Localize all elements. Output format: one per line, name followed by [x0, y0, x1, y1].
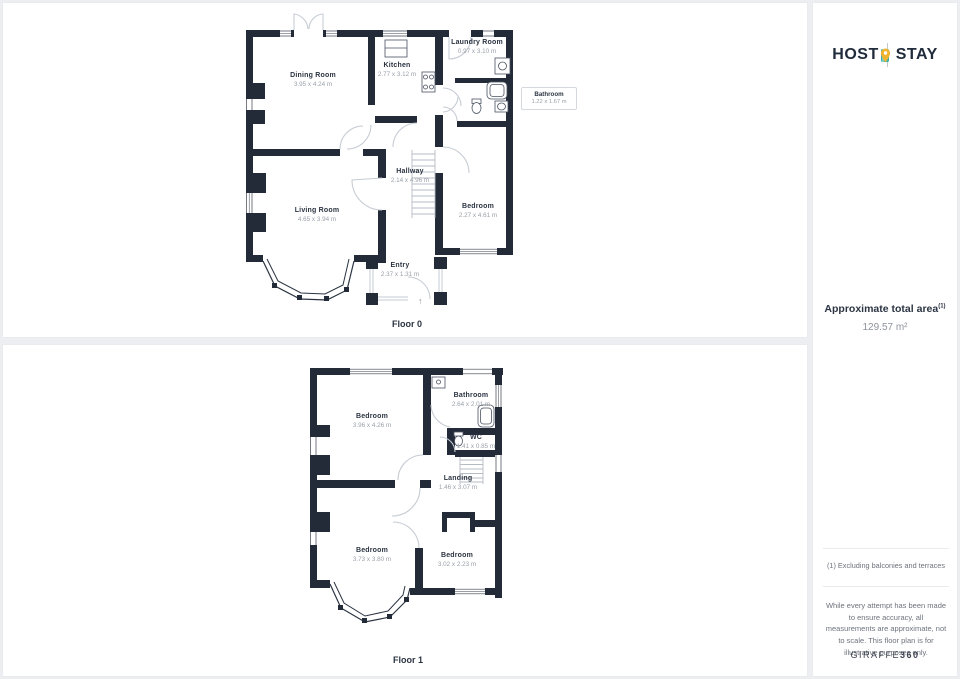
- room-label-bedroom-left: Bedroom 3.73 x 3.80 m: [353, 546, 391, 565]
- room-label-bedroom-right: Bedroom 3.02 x 2.23 m: [438, 551, 476, 570]
- sidebar-divider-bottom: [823, 586, 949, 587]
- room-label-bathroom-floor1: Bathroom 2.64 x 2.01 m: [452, 391, 490, 410]
- page: HOST STAY Approximate total area(1) 129.…: [0, 0, 960, 679]
- toilet-icon: [472, 99, 481, 114]
- location-pin-icon: [880, 48, 891, 63]
- room-label-living-room: Living Room 4.65 x 3.94 m: [295, 206, 340, 225]
- room-label-bedroom-floor0: Bedroom 2.27 x 4.61 m: [459, 202, 497, 221]
- bathroom-callout: Bathroom 1.22 x 1.67 m: [521, 87, 577, 110]
- area-superscript: (1): [938, 304, 945, 310]
- area-footnote: (1) Excluding balconies and terraces: [819, 561, 953, 570]
- room-label-dining-room: Dining Room 3.95 x 4.24 m: [290, 71, 336, 90]
- floor1-bay-window: [330, 582, 410, 623]
- room-label-laundry-room: Laundry Room 0.97 x 3.10 m: [451, 38, 503, 57]
- giraffe360-credit: GIRAFFE360: [813, 650, 957, 660]
- floor1-caption: Floor 1: [393, 655, 423, 665]
- room-label-wc: WC 1.41 x 0.85 m: [457, 433, 495, 452]
- room-label-bedroom-top: Bedroom 3.96 x 4.26 m: [353, 412, 391, 431]
- room-label-hallway: Hallway 2.14 x 4.96 m: [391, 167, 429, 186]
- floor0-door-arcs: [294, 14, 471, 210]
- approximate-area-block: Approximate total area(1) 129.57 m²: [813, 303, 957, 333]
- brand-host-text: HOST: [832, 46, 878, 64]
- brand-stay-text: STAY: [896, 46, 938, 64]
- kitchen-counter-icon: [385, 40, 407, 57]
- sidebar-panel: HOST STAY Approximate total area(1) 129.…: [812, 2, 958, 677]
- room-label-kitchen: Kitchen 2.77 x 3.12 m: [378, 61, 416, 80]
- area-value: 129.57 m²: [813, 322, 957, 333]
- floor0-caption: Floor 0: [392, 319, 422, 329]
- sink-icon: [432, 377, 445, 388]
- sidebar-divider-top: [823, 548, 949, 549]
- bathtub-icon: [487, 82, 507, 99]
- sink-icon: [495, 101, 508, 112]
- host-stay-logo: HOST STAY: [813, 43, 957, 67]
- entry-direction-arrow: ↑: [418, 296, 423, 306]
- stove-icon: [422, 72, 435, 92]
- washer-icon: [495, 58, 510, 74]
- area-title: Approximate total area(1): [813, 303, 957, 315]
- chimney-notch: [447, 518, 470, 532]
- room-label-landing: Landing 1.46 x 3.07 m: [439, 474, 477, 493]
- floor0-bay-window: [263, 259, 354, 301]
- room-label-entry: Entry 2.37 x 1.31 m: [381, 261, 419, 280]
